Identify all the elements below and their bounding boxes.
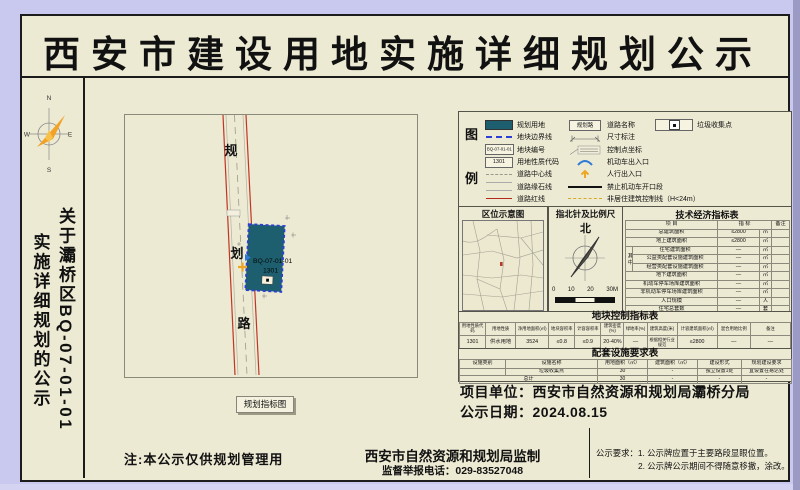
no-vehicle-opening-swatch xyxy=(568,186,602,188)
legend-item-plot-code: BQ-07-01-01 地块编号 xyxy=(485,144,559,156)
legend-item-garbage-point: 垃圾收集点 xyxy=(655,119,732,131)
non-residential-line-swatch xyxy=(568,198,602,199)
notice-requirements: 公示要求：1. 公示牌应置于主要路段显眼位置。 2. 公示牌公示期间不得随意移撤… xyxy=(596,447,790,473)
facility-table-section: 配套设施要求表 设施类别设施名称 用地面积（㎡）建筑面积（㎡） 建设形式规划建设… xyxy=(458,348,792,382)
legend-item-road-curb: 道路缘石线 xyxy=(485,180,559,192)
north-panel: 指北针及比例尺 北 010 2030M xyxy=(548,206,623,313)
location-marker xyxy=(500,262,503,266)
tech-indicator-panel: 技术经济指标表 项 目指 标备注 总建筑面积≤2800㎡ 地上建筑面积≤2800… xyxy=(622,206,792,313)
road-redline-swatch xyxy=(486,198,512,199)
hotline: 监督举报电话：029-83527048 xyxy=(330,463,575,478)
side-note-line1: 关于灞桥区BQ-07-01-01 xyxy=(53,207,79,462)
svg-text:W: W xyxy=(24,132,31,139)
road-curb-swatch xyxy=(486,182,512,191)
facility-table: 设施类别设施名称 用地面积（㎡）建筑面积（㎡） 建设形式规划建设要求 垃圾收集点… xyxy=(459,359,792,384)
facility-table-title: 配套设施要求表 xyxy=(459,349,791,359)
control-table-section: 地块控制指标表 用地性质代码用地性质 净用地面积(㎡)地块容积率 计容容积率建筑… xyxy=(458,311,792,350)
requirements-divider xyxy=(589,428,590,478)
north-arrow-icon xyxy=(559,231,612,285)
control-point-icon xyxy=(568,145,602,155)
legend-item-use-code: 1301 用地性质代码 xyxy=(485,156,559,168)
road-name-char: 划 xyxy=(230,246,243,261)
scale-bar xyxy=(555,297,615,303)
control-table: 用地性质代码用地性质 净用地面积(㎡)地块容积率 计容容积率建筑密度(%) 绿地… xyxy=(459,322,791,350)
road-name-char: 路 xyxy=(237,316,251,331)
dimension-icon xyxy=(568,132,602,142)
legend-item-road-redline: 道路红线 xyxy=(485,193,559,205)
plot-use-code-label: 1301 xyxy=(263,268,278,275)
legend-item-planned-land: 规划用地 xyxy=(485,119,559,131)
road-name-char: 规 xyxy=(224,143,237,158)
legend-title-char1: 图 xyxy=(465,124,478,143)
window-edge-right xyxy=(793,0,800,490)
planning-map-drawing: BQ-07-01-01 1301 规 划 路 xyxy=(125,115,415,375)
side-note-line2: 实施详细规划的公示 xyxy=(27,207,53,462)
tech-table-title: 技术经济指标表 xyxy=(623,207,791,221)
planned-land-swatch xyxy=(485,120,513,130)
side-note: 关于灞桥区BQ-07-01-01 实施详细规划的公示 xyxy=(27,207,78,462)
location-panel: 区位示意图 xyxy=(458,206,548,313)
legend-item-plot-boundary: 地块边界线 xyxy=(485,131,559,143)
sidebar-divider xyxy=(83,78,85,478)
control-table-title: 地块控制指标表 xyxy=(459,312,791,322)
compass-rose-icon: N E S W xyxy=(22,88,76,176)
window-edge-bottom xyxy=(0,484,793,490)
legend-title-char2: 例 xyxy=(465,168,478,187)
svg-text:N: N xyxy=(47,95,52,102)
garbage-point-swatch xyxy=(655,119,693,131)
use-code-swatch: 1301 xyxy=(485,157,513,168)
title-divider xyxy=(20,76,790,78)
legend-item-road-centerline: 道路中心线 xyxy=(485,168,559,180)
location-panel-title: 区位示意图 xyxy=(459,207,547,220)
garbage-point-icon xyxy=(669,120,680,130)
plot-boundary-swatch xyxy=(486,136,512,138)
producer: 西安市自然资源和规划局监制 xyxy=(330,445,575,465)
planning-notice: 西安市建设用地实施详细规划公示 N E S W 关于灞桥区BQ-07-01-01… xyxy=(0,0,800,490)
vehicle-entrance-legend-icon xyxy=(568,157,602,167)
road-name-swatch: 规划路 xyxy=(569,120,601,131)
road-centerline-swatch xyxy=(486,174,512,175)
map-caption: 规划指标图 xyxy=(236,396,294,413)
public-date: 公示日期：2024.08.15 xyxy=(460,402,608,422)
plot-code-label: BQ-07-01-01 xyxy=(253,258,293,265)
planning-map: BQ-07-01-01 1301 规 划 路 xyxy=(124,114,418,378)
location-sketch-map xyxy=(462,220,544,311)
page-title: 西安市建设用地实施详细规划公示 xyxy=(30,24,776,78)
plot-code-swatch: BQ-07-01-01 xyxy=(485,144,514,155)
requirement-line1: 公示要求：1. 公示牌应置于主要路段显眼位置。 xyxy=(596,447,790,460)
tech-group-label: 其中 xyxy=(626,246,633,272)
tech-indicator-table: 项 目指 标备注 总建筑面积≤2800㎡ 地上建筑面积≤2800㎡ 其中住宅建筑… xyxy=(625,220,790,324)
north-panel-title: 指北针及比例尺 xyxy=(549,207,622,220)
pedestrian-entrance-legend-icon xyxy=(568,169,602,179)
scale-ticks: 010 2030M xyxy=(552,287,618,293)
requirement-line2: 2. 公示牌公示期间不得随意移撤，涂改。 xyxy=(596,460,790,473)
road-station-marker xyxy=(227,210,240,216)
svg-text:S: S xyxy=(47,167,52,174)
bottom-note: 注:本公示仅供规划管理用 xyxy=(124,449,283,468)
legend-panel: 图 例 规划用地 地块边界线 BQ-07-01-01 地块编号 1301 用地性… xyxy=(458,111,792,208)
svg-text:E: E xyxy=(68,132,73,139)
project-unit: 项目单位：西安市自然资源和规划局灞桥分局 xyxy=(460,382,750,402)
